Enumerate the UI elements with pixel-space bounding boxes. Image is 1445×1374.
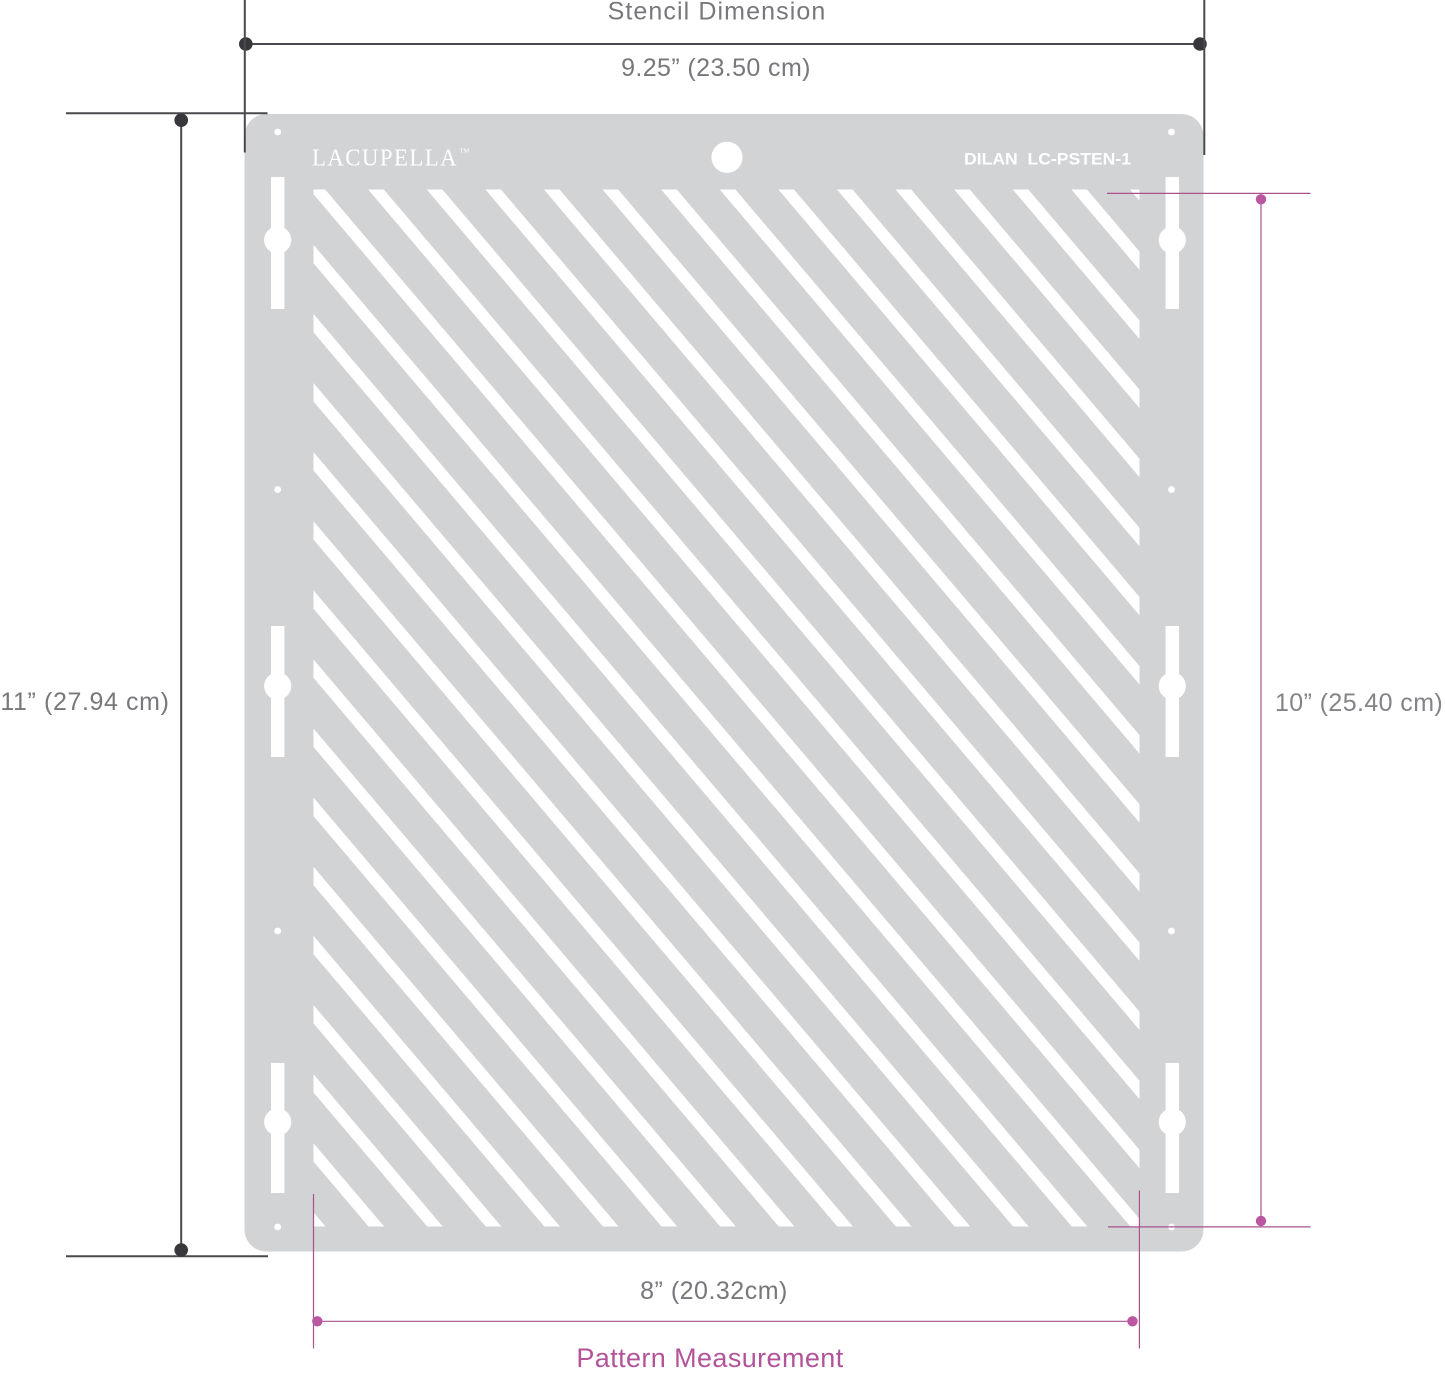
svg-text:Pattern Measurement: Pattern Measurement xyxy=(576,1343,843,1373)
svg-text:11” (27.94 cm): 11” (27.94 cm) xyxy=(0,688,169,716)
svg-text:TM: TM xyxy=(460,148,470,155)
svg-text:LACUPELLA: LACUPELLA xyxy=(312,146,458,172)
svg-text:DILAN LC-PSTEN-1: DILAN LC-PSTEN-1 xyxy=(964,150,1131,169)
svg-text:8” (20.32cm): 8” (20.32cm) xyxy=(640,1277,788,1305)
svg-text:10” (25.40 cm): 10” (25.40 cm) xyxy=(1275,689,1443,717)
svg-text:Stencil Dimension: Stencil Dimension xyxy=(608,0,827,26)
svg-text:9.25” (23.50 cm): 9.25” (23.50 cm) xyxy=(621,54,811,82)
